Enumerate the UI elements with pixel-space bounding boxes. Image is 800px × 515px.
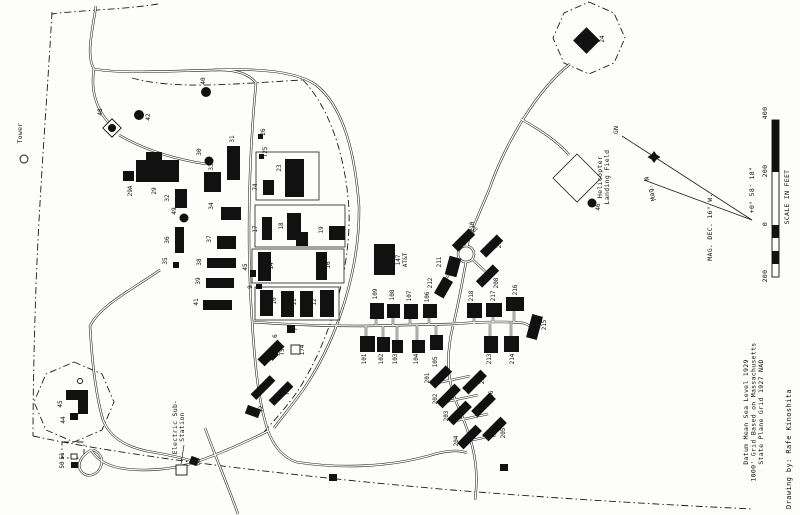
building-label-T2: T2 [258, 405, 265, 413]
building-label-32: 32 [164, 194, 171, 202]
building-49 [180, 214, 189, 223]
building-label-74: 74 [252, 183, 259, 191]
scale-tick-400: 400 [761, 107, 769, 120]
building-label-40: 40 [200, 77, 207, 85]
building-label-201: 201 [424, 372, 431, 383]
building-label-31: 31 [229, 135, 236, 143]
building-label-45: 45 [242, 263, 249, 271]
map-structure [78, 379, 83, 384]
magnetic-north-label: Mag. N [642, 175, 657, 202]
map-structure [176, 465, 187, 475]
building-label-109: 109 [372, 288, 379, 299]
building-label-45: 45 [57, 400, 64, 408]
scale-tick-200b: 200 [761, 270, 769, 283]
tower-label: Tower [16, 122, 24, 143]
building-label-60: 60 [195, 458, 202, 466]
building-36 [175, 227, 184, 253]
building-label-38: 38 [196, 258, 203, 266]
building-label-107: 107 [406, 290, 413, 301]
building-label-102: 102 [378, 353, 385, 364]
building-50 [71, 462, 78, 468]
att-name-label: AT&T [402, 252, 409, 267]
building-203 [447, 401, 472, 426]
security-area-octagon-sw [34, 362, 114, 442]
compass: GN Mag. N MAG. DEC. 16° W. +0° 58' 18" [612, 126, 756, 261]
building-label-T25: T25 [262, 146, 269, 157]
building-label-216: 216 [512, 284, 519, 295]
building-102 [377, 337, 390, 352]
building-label-207: 207 [479, 373, 486, 384]
building-label-103: 103 [392, 353, 399, 364]
building-label-206: 206 [488, 390, 495, 401]
building-label-174: 174 [299, 344, 306, 355]
building-45 [66, 390, 88, 400]
building-label-204: 204 [453, 435, 460, 446]
att-number-label: 147 [395, 254, 402, 265]
building-label-104: 104 [413, 353, 420, 364]
building-label-210: 210 [469, 221, 476, 232]
building-17 [262, 217, 272, 240]
scale-tick-200: 200 [761, 165, 769, 178]
building-44 [70, 413, 78, 420]
substation-label-line2: Station [178, 412, 186, 442]
building-label-7: 7 [292, 327, 299, 331]
building-39 [206, 278, 234, 288]
helicopter-label-line2: Landing Field [603, 150, 611, 205]
building-label-101: 101 [361, 353, 368, 364]
map-structure [20, 155, 28, 163]
building-label-39: 39 [195, 277, 202, 285]
building-214 [504, 336, 519, 352]
building-45 [250, 270, 256, 277]
map-structure [500, 464, 508, 471]
building-18 [287, 213, 301, 240]
building-212 [434, 277, 453, 299]
building-218 [467, 303, 482, 318]
building-216 [506, 297, 524, 311]
building-104 [412, 340, 425, 353]
building-label-42: 42 [145, 113, 152, 121]
building-label-51: 51 [59, 452, 66, 460]
building-label-212: 212 [427, 277, 434, 288]
building-101 [360, 336, 375, 352]
building-label-203: 203 [443, 410, 450, 421]
building-109 [370, 303, 384, 319]
building-label-218: 218 [468, 290, 475, 301]
building-103 [392, 340, 403, 353]
building-23 [285, 159, 304, 197]
building-213 [484, 336, 498, 353]
building-label-18: 18 [278, 222, 285, 230]
building-label-T3: T3 [284, 388, 291, 396]
grid-offset-label: +0° 58' 18" [748, 167, 756, 213]
building-label-T4: T4 [264, 379, 271, 387]
building-29A [123, 171, 134, 181]
building-label-26: 26 [260, 128, 267, 136]
building-106 [423, 304, 437, 318]
building-label-213: 213 [486, 353, 493, 364]
scale-tick-0: 0 [761, 222, 769, 226]
building-label-46: 46 [595, 203, 602, 211]
building-label-17: 17 [252, 225, 259, 233]
map-notes: Datum Mean Sea Level 1929 1000' Grid Bas… [742, 342, 793, 509]
building-35 [173, 262, 179, 268]
building-label-23: 23 [276, 164, 283, 172]
building-label-29A: 29A [127, 185, 134, 196]
building-label-30: 30 [196, 148, 203, 156]
credit-label: Drawing by: Rafe Kinoshita [785, 389, 793, 509]
building-label-106: 106 [424, 291, 431, 302]
building-label-202: 202 [432, 393, 439, 404]
building-label-37: 37 [206, 235, 213, 243]
building-37 [217, 236, 236, 249]
building-label-214: 214 [509, 353, 516, 364]
map-structure [374, 244, 395, 275]
helicopter-landing-field [553, 154, 601, 202]
building-41 [203, 300, 232, 310]
building-label-211: 211 [436, 256, 443, 267]
building-label-T5: T5 [279, 348, 286, 356]
building-74 [263, 180, 274, 195]
building-label-19: 19 [318, 226, 325, 234]
building-label-209: 209 [496, 237, 503, 248]
building-label-217: 217 [490, 290, 497, 301]
building-label-36: 36 [164, 236, 171, 244]
building-label-6: 6 [272, 334, 279, 338]
map-structure [78, 398, 88, 414]
scale-bar: 400 200 0 200 SCALE IN FEET [761, 107, 791, 283]
building-label-49: 49 [171, 207, 178, 215]
building-34 [221, 207, 241, 220]
building-107 [404, 304, 418, 319]
building-label-29: 29 [151, 187, 158, 195]
building-label-48: 48 [97, 108, 104, 116]
building-label-33: 33 [208, 163, 215, 171]
building-9 [256, 284, 262, 289]
building-label-41: 41 [193, 298, 200, 306]
declination-label: MAG. DEC. 16° W. [706, 193, 714, 260]
building-label-108: 108 [389, 289, 396, 300]
building-33 [204, 172, 221, 192]
building-40 [201, 87, 211, 97]
building-label-205: 205 [500, 427, 507, 438]
building-211 [445, 256, 462, 277]
building-label-14: 14 [268, 262, 275, 270]
building-label-9: 9 [247, 285, 254, 289]
building-label-215: 215 [541, 319, 548, 330]
building-204 [457, 425, 482, 450]
map-structure [329, 474, 337, 481]
building-108 [387, 304, 400, 318]
scale-caption: SCALE IN FEET [783, 170, 791, 225]
grid-north-label: GN [612, 126, 620, 134]
building-label-12: 12 [311, 298, 318, 306]
building-label-50: 50 [59, 461, 66, 469]
datum-note-line3: State Plane Grid 1927 NAD [757, 359, 765, 464]
building-42 [134, 110, 144, 120]
building-label-24: 24 [599, 35, 606, 43]
building-24 [573, 27, 600, 54]
building-217 [486, 303, 502, 317]
building-label-34: 34 [208, 202, 215, 210]
building-T4 [251, 375, 276, 400]
map-canvas: 40424830494629A29323635333126T2574233437… [0, 0, 800, 515]
building-label-208: 208 [493, 277, 500, 288]
building-48 [108, 124, 116, 132]
building-38 [207, 258, 236, 268]
building-label-11: 11 [291, 298, 298, 306]
building-31 [227, 146, 240, 180]
building-label-44: 44 [60, 416, 67, 424]
building-32 [175, 189, 187, 208]
building-label-10: 10 [271, 297, 278, 305]
grid-north-star-icon [648, 151, 661, 163]
site-plan-map: 40424830494629A29323635333126T2574233437… [0, 0, 800, 515]
building-19 [329, 226, 345, 240]
building-label-35: 35 [162, 257, 169, 265]
building-51 [71, 454, 77, 459]
building-105 [430, 335, 443, 350]
building-label-105: 105 [432, 356, 439, 367]
building-29 [136, 160, 179, 182]
building-label-16: 16 [325, 261, 332, 269]
map-structure [320, 290, 334, 317]
